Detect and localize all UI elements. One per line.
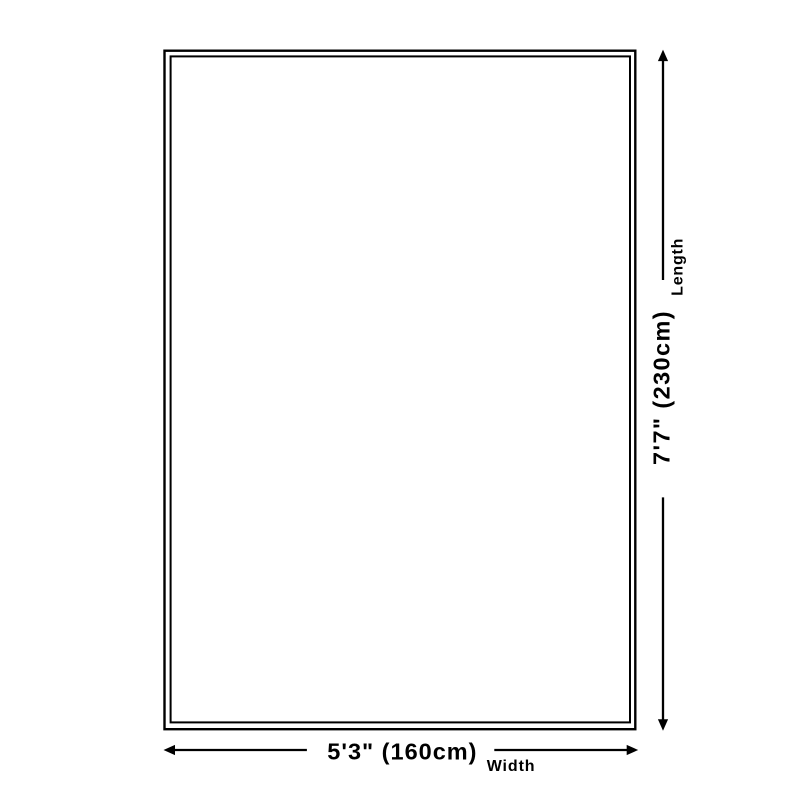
svg-text:5'3" (160cm): 5'3" (160cm) [327, 738, 477, 764]
svg-text:7'7" (230cm): 7'7" (230cm) [649, 310, 675, 465]
svg-text:Width: Width [487, 758, 536, 775]
svg-text:Length: Length [669, 238, 686, 296]
